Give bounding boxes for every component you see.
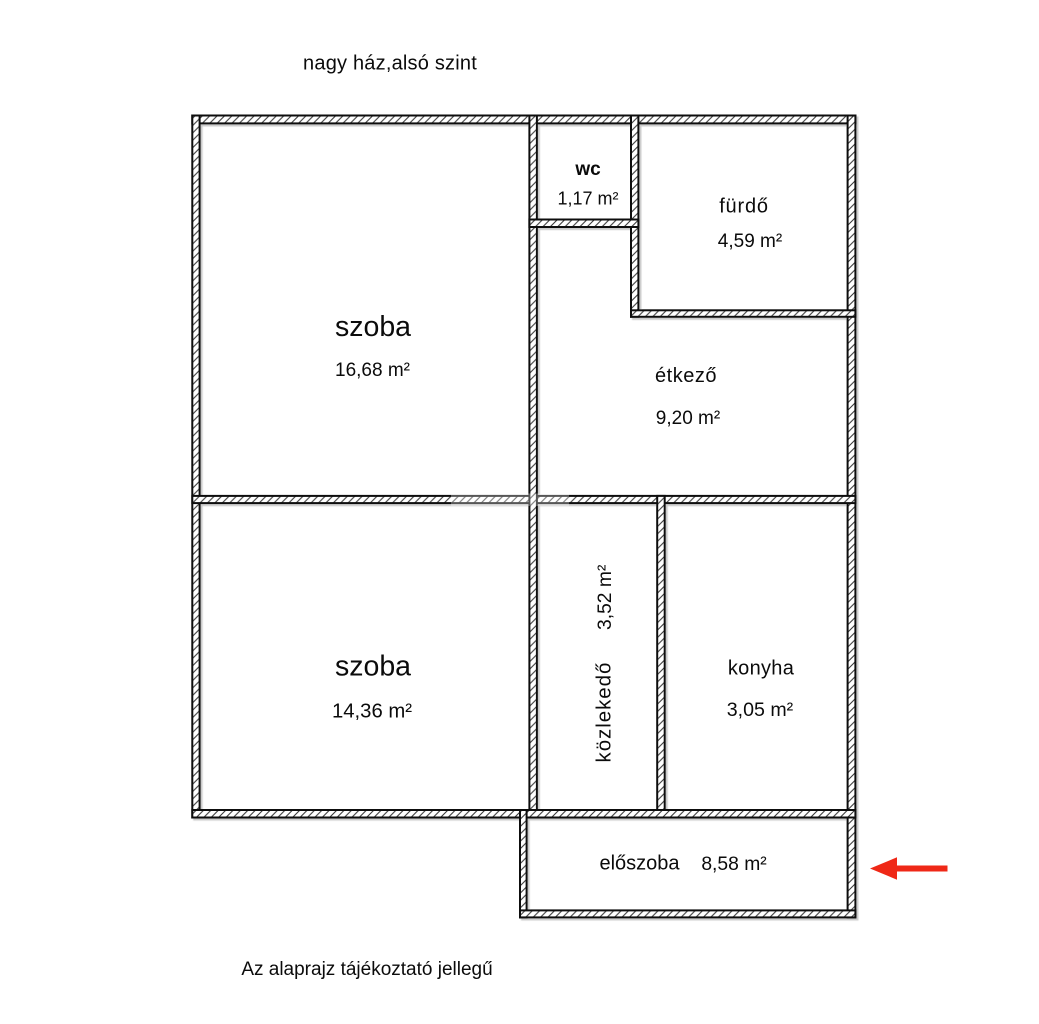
svg-text:3,52 m²: 3,52 m² [595,564,616,630]
svg-text:8,58 m²: 8,58 m² [701,854,767,875]
svg-text:4,59 m²: 4,59 m² [718,231,782,252]
svg-text:16,68 m²: 16,68 m² [335,360,410,381]
svg-text:nagy ház,alsó szint: nagy ház,alsó szint [303,53,477,75]
svg-text:9,20 m²: 9,20 m² [656,408,720,429]
svg-text:étkező: étkező [655,365,717,387]
svg-text:szoba: szoba [335,311,411,343]
svg-text:wc: wc [574,159,601,180]
svg-text:közlekedő: közlekedő [593,662,616,763]
svg-text:3,05 m²: 3,05 m² [727,699,794,721]
svg-text:konyha: konyha [728,658,795,680]
svg-text:szoba: szoba [335,651,411,683]
svg-text:1,17 m²: 1,17 m² [557,189,618,209]
svg-text:előszoba: előszoba [599,853,680,875]
svg-text:fürdő: fürdő [719,196,769,218]
svg-text:Az alaprajz tájékoztató jelleg: Az alaprajz tájékoztató jellegű [241,959,492,980]
svg-text:14,36 m²: 14,36 m² [332,701,412,723]
